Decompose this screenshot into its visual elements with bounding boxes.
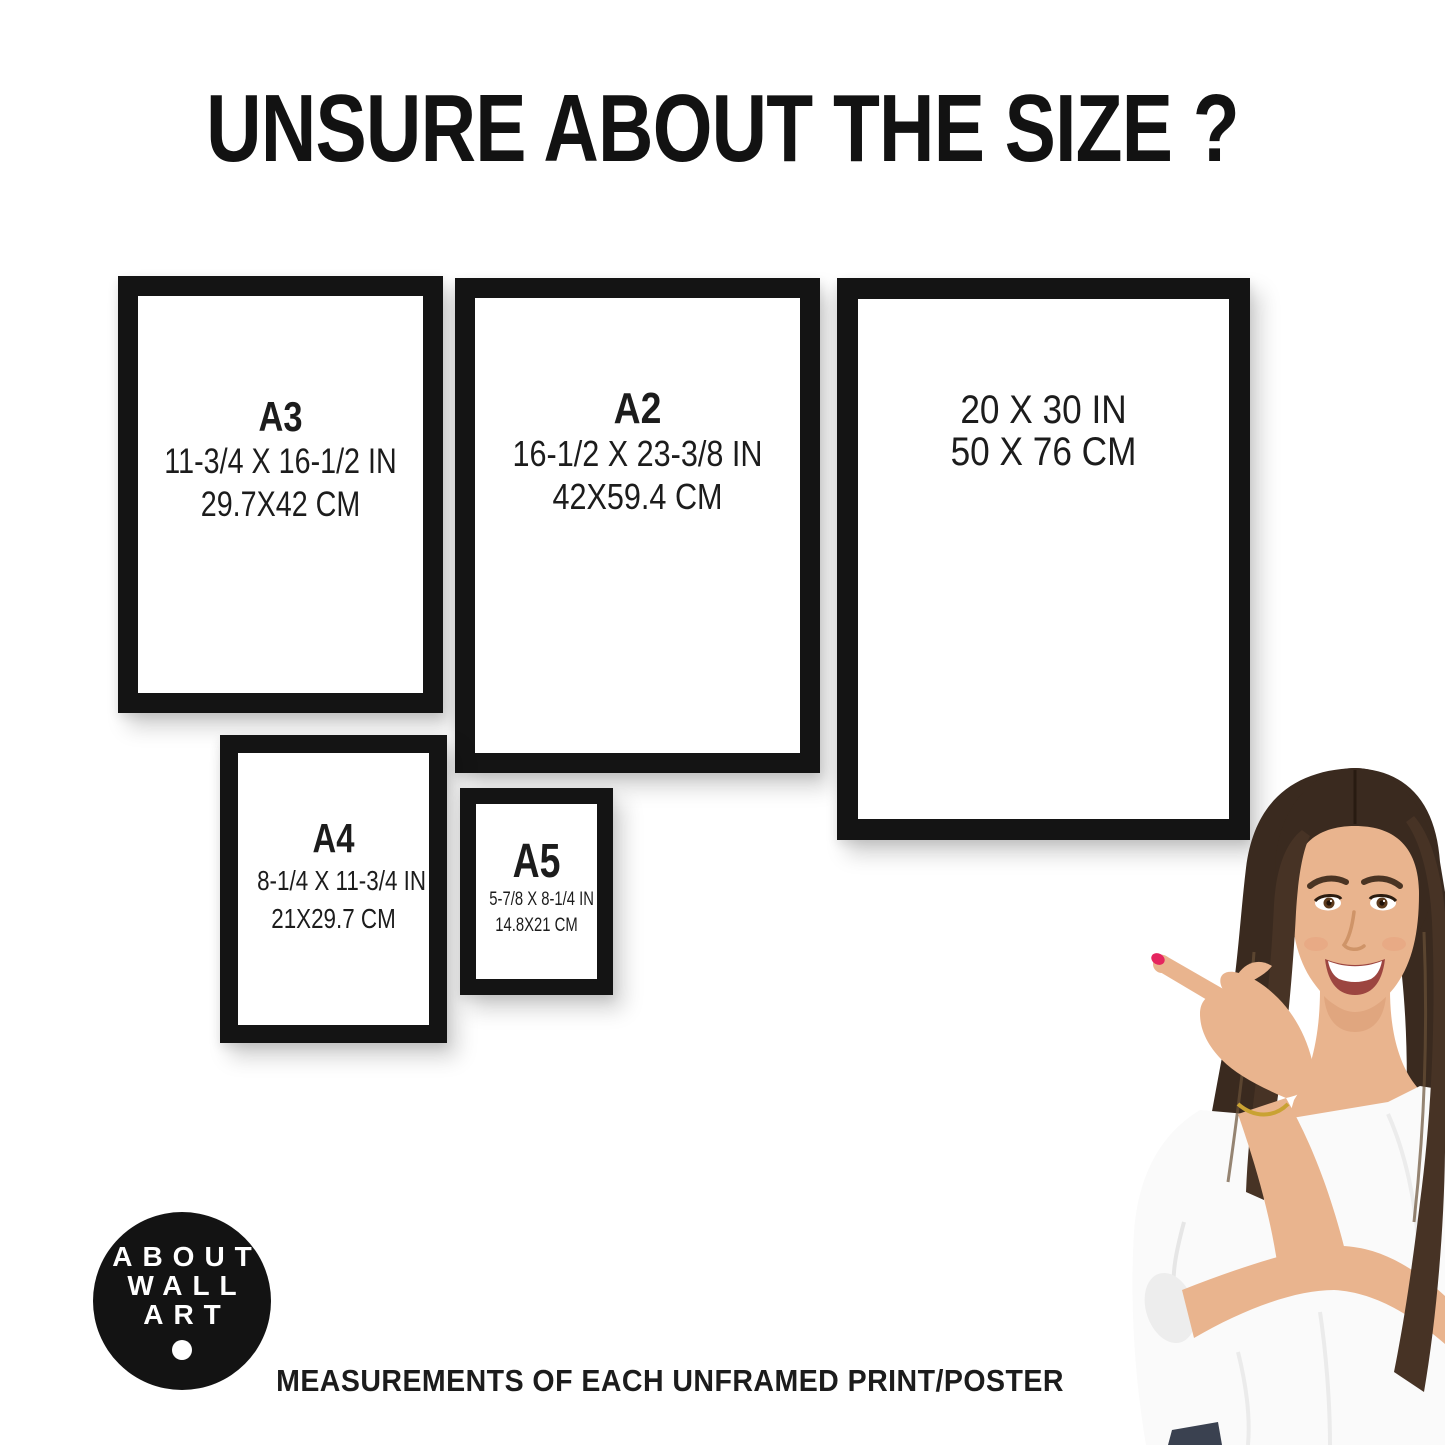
woman-pointing-photo bbox=[1088, 752, 1445, 1445]
page-background: { "page": { "title": "UNSURE ABOUT THE S… bbox=[0, 0, 1445, 1445]
size-frame-a4: A4 8-1/4 X 11-3/4 IN 21X29.7 CM bbox=[220, 735, 447, 1043]
frame-text-block: A5 5-7/8 X 8-1/4 IN 14.8X21 CM bbox=[489, 804, 583, 939]
frame-size-cm: 42X59.4 CM bbox=[499, 475, 775, 518]
size-frame-a3: A3 11-3/4 X 16-1/2 IN 29.7X42 CM bbox=[118, 276, 443, 713]
frame-size-label: A4 bbox=[257, 814, 410, 862]
logo-text-line: ART bbox=[133, 1300, 231, 1329]
woman-face bbox=[1291, 826, 1419, 1012]
size-frame-a2: A2 16-1/2 X 23-3/8 IN 42X59.4 CM bbox=[455, 278, 820, 773]
frame-size-cm: 14.8X21 CM bbox=[489, 913, 583, 939]
frame-text-block: A3 11-3/4 X 16-1/2 IN 29.7X42 CM bbox=[164, 296, 398, 526]
logo-text-line: WALL bbox=[117, 1271, 246, 1300]
frame-size-label: A5 bbox=[489, 837, 583, 887]
size-frame-a5: A5 5-7/8 X 8-1/4 IN 14.8X21 CM bbox=[460, 788, 613, 995]
frame-size-inches: 5-7/8 X 8-1/4 IN bbox=[489, 887, 583, 913]
frame-size-label: A2 bbox=[499, 386, 775, 432]
frame-size-inches: 8-1/4 X 11-3/4 IN bbox=[257, 862, 410, 900]
page-title: UNSURE ABOUT THE SIZE ? bbox=[145, 74, 1301, 184]
frame-text-block: 20 X 30 IN 50 X 76 CM bbox=[880, 299, 1206, 473]
frame-size-label: A3 bbox=[164, 394, 398, 440]
woman-eye bbox=[1370, 895, 1396, 910]
logo-dot bbox=[172, 1340, 192, 1360]
frame-size-inches: 16-1/2 X 23-3/8 IN bbox=[499, 432, 775, 475]
frame-size-cm: 50 X 76 CM bbox=[880, 431, 1206, 473]
frame-size-inches: 11-3/4 X 16-1/2 IN bbox=[164, 440, 398, 483]
frame-size-cm: 29.7X42 CM bbox=[164, 483, 398, 526]
logo-text-line: ABOUT bbox=[102, 1242, 262, 1271]
frame-text-block: A2 16-1/2 X 23-3/8 IN 42X59.4 CM bbox=[499, 298, 775, 518]
frame-size-cm: 21X29.7 CM bbox=[257, 900, 410, 938]
woman-eye bbox=[1315, 895, 1341, 910]
frame-size-inches: 20 X 30 IN bbox=[880, 389, 1206, 431]
frame-text-block: A4 8-1/4 X 11-3/4 IN 21X29.7 CM bbox=[257, 753, 410, 938]
